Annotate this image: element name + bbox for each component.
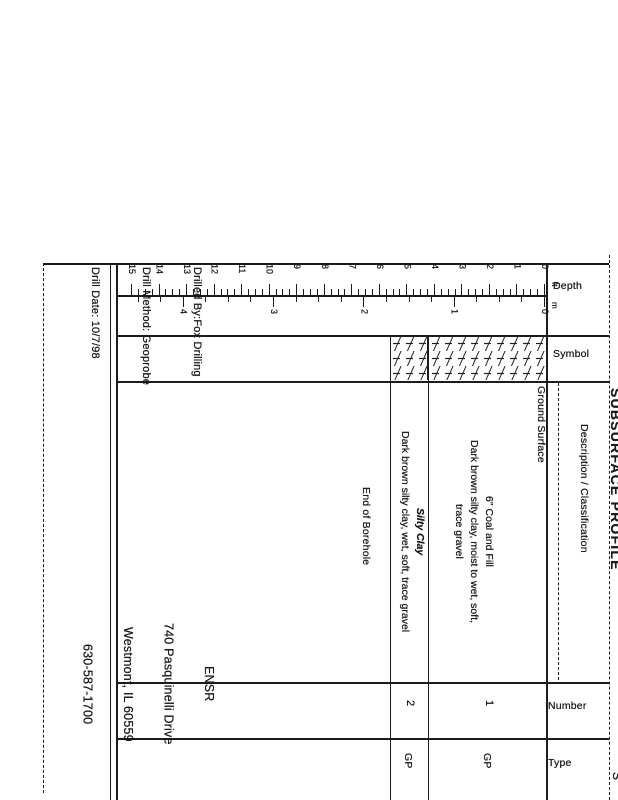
ruler-tick-m [363, 297, 364, 307]
company-phone: 630-587-1700 [80, 598, 94, 770]
ruler-tick-m [318, 297, 319, 302]
ruler-tick-m [521, 297, 522, 302]
ruler-tick-ft [489, 284, 490, 295]
ruler-label-m: 3 [268, 309, 279, 314]
corner-text-fragment: S [610, 772, 618, 780]
ruler-tick-ft [516, 284, 517, 295]
header-depth: Depth [553, 280, 582, 292]
scanned-boring-log-page: 012345678910111213141501234 ft m Drilled… [0, 0, 618, 800]
description-header-dashed-line [558, 383, 559, 680]
ruler-tick-ft [379, 284, 380, 295]
ruler-tick-ft [406, 284, 407, 295]
drill-date-line: Drill Date: 10/7/98 [86, 267, 103, 482]
ruler-label-m: 2 [358, 309, 369, 314]
ruler-tick-ft [241, 284, 242, 295]
ruler-tick-ft [324, 284, 325, 295]
border-left-dashed [43, 263, 44, 793]
ruler-tick-m [250, 297, 251, 302]
ruler-tick-m [273, 297, 274, 307]
ruler-tick-m [386, 297, 387, 302]
sample2-number: 2 [404, 700, 416, 706]
ruler-tick-ft [434, 284, 435, 295]
company-block: ENSR 740 Pasquinelli Drive Westmont, IL … [53, 598, 242, 770]
page-title: SUBSURFACE PROFILE [608, 388, 618, 644]
ruler-tick-m [499, 297, 500, 302]
ruler-tick-ft [269, 284, 270, 295]
company-address2: Westmont, IL 60559 [121, 598, 135, 770]
ruler-label-ft: 10 [264, 264, 275, 274]
header-number: Number [548, 700, 587, 712]
ruler-tick-ft [296, 284, 297, 295]
ruler-tick-m [454, 297, 455, 307]
symbol-cell-divider [427, 336, 429, 380]
borehole-end-line [390, 336, 391, 800]
layer1-title: 6" Coal and Fill [481, 383, 496, 680]
ruler-tick-m [431, 297, 432, 302]
soil-symbol-hatch [391, 336, 545, 380]
company-address1: 740 Pasquinelli Drive [161, 598, 175, 770]
ruler-tick-m [476, 297, 477, 302]
ground-surface-label: Ground Surface [535, 386, 547, 481]
end-of-borehole-label: End of Borehole [360, 487, 372, 625]
header-type: Type [548, 757, 572, 769]
layer1-description: 6" Coal and Fill Dark brown silty clay, … [450, 383, 496, 680]
ruler-tick-m [544, 297, 545, 307]
layer2-description: Silty Clay Dark brown silty clay, wet, s… [396, 383, 427, 680]
ruler-unit-m: m [549, 302, 560, 309]
ruler-label-m: 0 [539, 309, 550, 314]
ruler-tick-m [296, 297, 297, 302]
sample2-type: GP [402, 753, 414, 769]
border-top [43, 263, 609, 265]
ground-surface-line [546, 263, 548, 800]
sample1-number: 1 [483, 700, 495, 706]
ruler-tick-ft [544, 284, 545, 295]
ruler-label-m: 1 [449, 309, 460, 314]
drill-info-block: Drilled By:Fox Drilling Drill Method: Ge… [52, 267, 239, 482]
layer1-desc-line2: trace gravel [451, 383, 466, 680]
ruler-tick-m [341, 297, 342, 302]
ruler-tick-m [409, 297, 410, 302]
header-description: Description / Classification [578, 398, 590, 578]
drilled-by-line: Drilled By:Fox Drilling [188, 267, 205, 482]
sample1-type: GP [481, 753, 493, 769]
ruler-tick-ft [461, 284, 462, 295]
layer-boundary-line [428, 336, 429, 800]
layer1-desc-line1: Dark brown silty clay, moist to wet, sof… [466, 383, 481, 680]
layer2-title: Silty Clay [412, 383, 427, 680]
ruler-tick-ft [351, 284, 352, 295]
header-symbol: Symbol [553, 348, 589, 360]
layer2-desc-line1: Dark brown silty clay, wet, soft, trace … [397, 383, 412, 680]
company-name: ENSR [202, 598, 216, 770]
drill-method-line: Drill Method: Geoprobe [137, 267, 154, 482]
